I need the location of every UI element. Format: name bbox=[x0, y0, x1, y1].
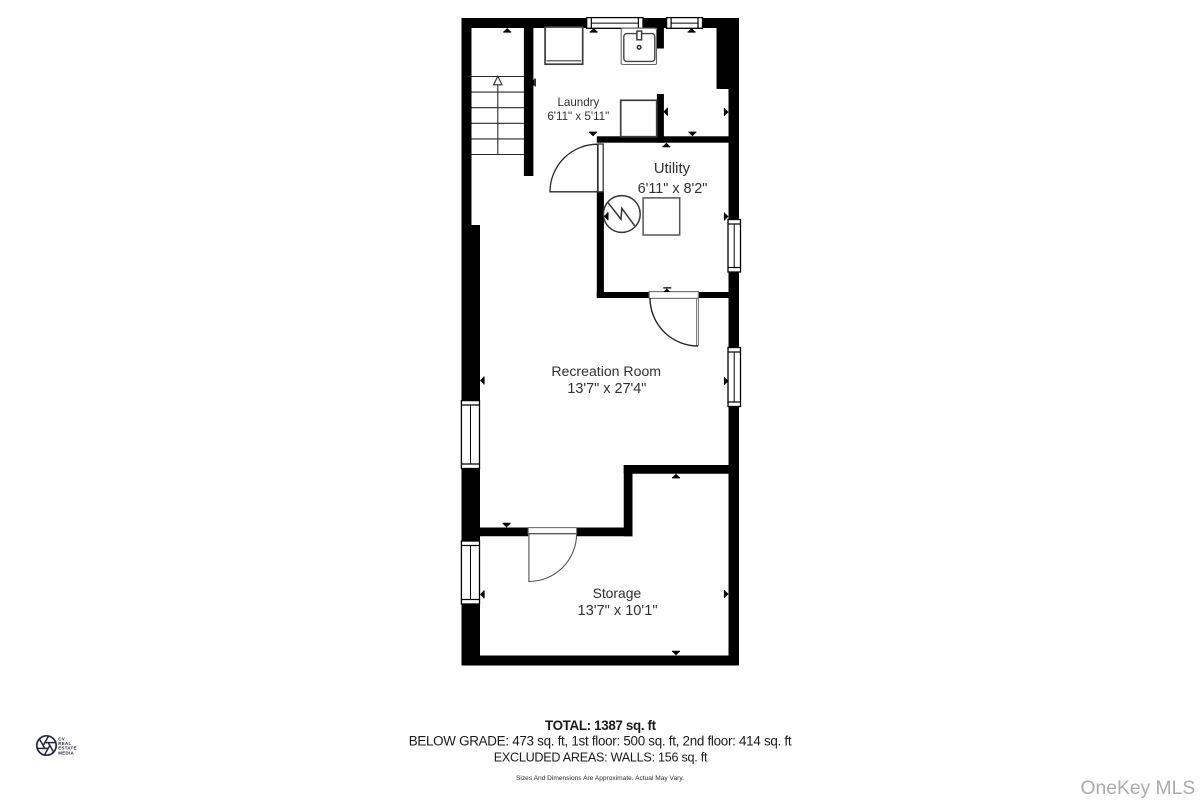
svg-text:Recreation Room: Recreation Room bbox=[551, 363, 661, 379]
svg-text:TOTAL: 1387 sq. ft: TOTAL: 1387 sq. ft bbox=[545, 718, 657, 733]
svg-text:Sizes And Dimensions Are Appro: Sizes And Dimensions Are Approximate, Ac… bbox=[516, 775, 684, 782]
svg-text:Storage: Storage bbox=[593, 585, 642, 601]
svg-text:Laundry: Laundry bbox=[557, 96, 599, 109]
svg-text:13'7" x 27'4": 13'7" x 27'4" bbox=[567, 381, 646, 397]
svg-text:6'11" x 8'2": 6'11" x 8'2" bbox=[638, 181, 708, 197]
svg-text:6'11" x 5'11": 6'11" x 5'11" bbox=[547, 110, 609, 123]
svg-text:Utility: Utility bbox=[654, 161, 691, 177]
svg-text:OneKey MLS: OneKey MLS bbox=[1081, 778, 1196, 799]
svg-text:BELOW GRADE: 473 sq. ft, 1st f: BELOW GRADE: 473 sq. ft, 1st floor: 500 … bbox=[409, 733, 792, 748]
svg-text:EXCLUDED AREAS: WALLS: 156 sq.: EXCLUDED AREAS: WALLS: 156 sq. ft bbox=[494, 750, 708, 764]
svg-text:13'7" x 10'1": 13'7" x 10'1" bbox=[577, 603, 657, 619]
svg-text:MEDIA: MEDIA bbox=[58, 750, 74, 755]
